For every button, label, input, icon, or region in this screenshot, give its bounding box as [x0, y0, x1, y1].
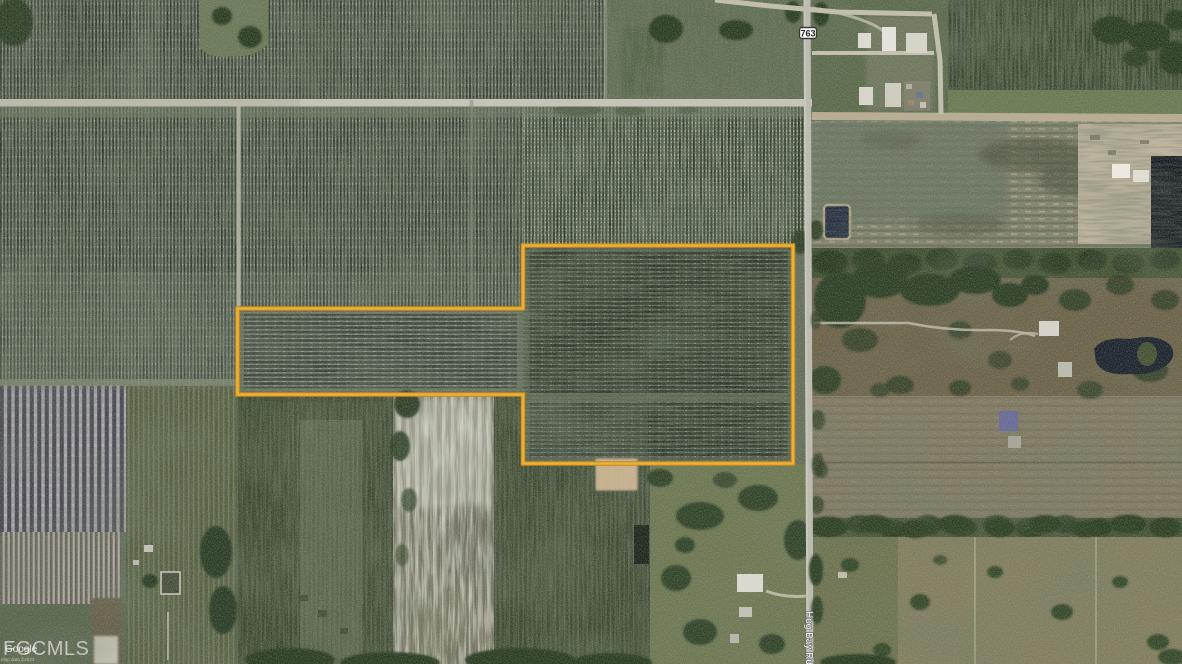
svg-text:Hog Bay Rd: Hog Bay Rd — [803, 611, 814, 664]
svg-text:Google: Google — [5, 644, 38, 655]
svg-text:Map data ©2023: Map data ©2023 — [1, 656, 35, 662]
svg-text:763: 763 — [800, 29, 815, 39]
